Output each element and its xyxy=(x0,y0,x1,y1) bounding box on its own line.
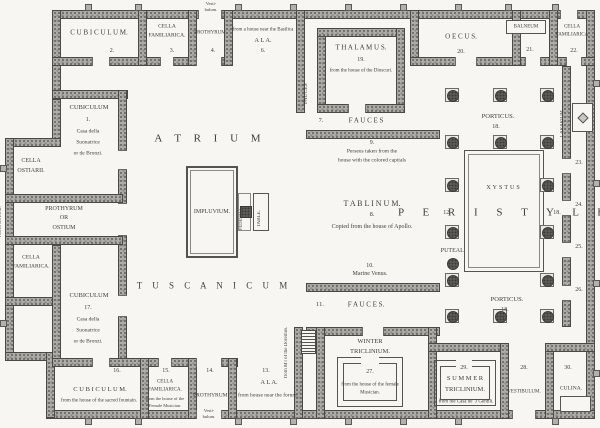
winter-triclinium-number: 27. xyxy=(366,369,374,375)
buttress xyxy=(0,165,7,172)
table-label: TABLE. xyxy=(257,197,262,227)
room-label-winter-triclinium1: WINTER xyxy=(357,339,382,346)
fauces11-number: 11. xyxy=(316,302,324,309)
buttress xyxy=(455,418,462,425)
door-gap xyxy=(562,158,571,174)
cubiculum17-note2: Suonatrice xyxy=(76,328,100,334)
buttress xyxy=(593,370,600,377)
room-label-atrium: A T R I U M xyxy=(154,134,265,145)
cubiculum1-number: 1. xyxy=(86,117,91,123)
wall xyxy=(306,283,440,292)
buttress xyxy=(593,80,600,87)
room-label-culina: CULINA. xyxy=(560,386,582,392)
room-label-prothyrum-ostium2: OR xyxy=(60,215,68,221)
wall xyxy=(317,28,326,113)
wall xyxy=(545,343,554,419)
room-label-fauces7: F A U C E S xyxy=(349,118,384,125)
room-label-oecus: O E C U S. xyxy=(445,34,477,41)
tablinum-top-note1: Perseus taken from the xyxy=(347,149,397,155)
door-gap xyxy=(562,285,571,301)
buttress xyxy=(400,418,407,425)
wall xyxy=(5,236,123,245)
winter-triclinium-note2: Musician. xyxy=(360,391,380,396)
cubiculum1-note3: or de Bronzi. xyxy=(74,151,103,157)
column xyxy=(540,88,554,102)
column xyxy=(493,135,507,149)
buttress xyxy=(593,180,600,187)
floor-plan: IMPLUVIUM. PEDESTAL. TABLE. BALNEUM A T … xyxy=(0,0,600,428)
door-gap xyxy=(560,10,578,19)
room-label-summer-triclinium1: S U M M E R xyxy=(447,376,483,383)
balneum-room-number: 21. xyxy=(526,47,534,53)
tablinum-bottom-note: Marine Venus. xyxy=(353,271,388,277)
room-label-cella-familiarica22-2: FAMILIARICA xyxy=(556,33,588,38)
porticus-bottom-number: 18. xyxy=(501,307,509,313)
wall xyxy=(138,10,147,66)
posticum-door-number: 25. xyxy=(575,244,583,250)
door-gap xyxy=(160,57,174,66)
tablinum-top-note2: house with the colored capitals xyxy=(338,158,406,164)
column xyxy=(445,88,459,102)
room-label-cella-familiarica3: CELLA xyxy=(158,24,176,30)
door-gap xyxy=(455,57,477,66)
lararium-label: LARARIUM. xyxy=(560,93,565,137)
room-label-cella-familiarica-left: CELLA xyxy=(22,255,40,261)
summer-couch-inner xyxy=(440,366,490,400)
door-gap xyxy=(512,410,536,419)
buttress xyxy=(552,418,559,425)
column xyxy=(540,178,554,192)
summer-triclinium-note: from the Casa de' 3 Gentili. xyxy=(438,400,493,405)
cubiculum17-number: 17. xyxy=(84,305,92,311)
couch-opening xyxy=(361,356,379,368)
pedestal-label: PEDESTAL. xyxy=(239,194,244,230)
balneum-label: BALNEUM xyxy=(514,25,539,30)
thalamus-note: from the house of the Dioscuri. xyxy=(330,69,393,74)
hearth xyxy=(560,396,591,412)
room-label-tablinum: T A B L I N U M. xyxy=(344,200,401,208)
door-gap xyxy=(118,295,127,317)
door-gap xyxy=(118,203,127,236)
column xyxy=(445,178,459,192)
door-gap xyxy=(92,57,110,66)
room-label-cella-familiarica-left-2: FAMILIARICA. xyxy=(12,264,49,270)
room-label-ala6: A L A. xyxy=(254,38,271,45)
cubiculum17-note1: Casa della xyxy=(77,317,100,323)
wall xyxy=(52,90,128,99)
puteal-label: PUTEAL. xyxy=(441,248,466,254)
ala6-number: 6. xyxy=(261,48,266,54)
buttress xyxy=(85,418,92,425)
niche-ornament xyxy=(577,112,588,123)
buttress xyxy=(345,418,352,425)
door-gap xyxy=(566,57,582,66)
room-label-prothyrum4: PROTHYRUM xyxy=(194,31,225,36)
cubiculum1-note2: Suonatrice xyxy=(76,140,100,146)
column xyxy=(445,309,459,323)
door-gap xyxy=(196,57,222,66)
buttress xyxy=(135,4,142,11)
room-label-cella-ostiarii: CELLA xyxy=(21,158,40,164)
buttress xyxy=(345,4,352,11)
room-label-cella-familiarica15-2: FAMILIARICA. xyxy=(148,388,182,393)
buttress xyxy=(400,4,407,11)
cella-familiarica15-note2: Female Musician. xyxy=(149,404,181,409)
wall xyxy=(5,194,123,203)
buttress xyxy=(85,4,92,11)
room-label-cubiculum17: CUBICULUM xyxy=(69,293,108,300)
cella-familiarica15-note1: from the house of the xyxy=(146,397,185,402)
room-label-prothyrum14: PROTHYRUM. xyxy=(193,393,229,399)
prothyrum4-number: 4. xyxy=(211,48,216,54)
vestibulum28-number: 28. xyxy=(520,365,528,371)
tablinum-number: 8. xyxy=(370,212,375,219)
room-label-peristyle: P E R I S T Y L E xyxy=(398,208,600,219)
posticum-door-number: 26. xyxy=(575,287,583,293)
oecus-number: 20. xyxy=(457,49,465,55)
wall xyxy=(52,10,61,99)
room-label-cubiculum16: C U B I C U L U M. xyxy=(73,387,126,394)
buttress xyxy=(593,280,600,287)
room-label-tuscanicum: T U S C A N I C U M xyxy=(137,282,292,291)
cubiculum2-number: 2. xyxy=(110,48,115,54)
tablinum-bottom-number: 10. xyxy=(366,263,374,269)
column xyxy=(445,225,459,239)
wall xyxy=(396,28,405,113)
room-label-fauces-side: FAUCES xyxy=(304,58,310,104)
door-gap xyxy=(196,358,222,367)
cubiculum16-note: from the house of the sacred fountain. xyxy=(61,399,137,404)
wall xyxy=(500,343,509,419)
buttress xyxy=(290,418,297,425)
cubiculum16-number: 16. xyxy=(113,368,121,374)
buttress xyxy=(0,320,7,327)
wall xyxy=(428,343,509,352)
cella-familiarica15-number: 15. xyxy=(162,368,170,374)
posticum-door-number: 23. xyxy=(575,160,583,166)
cubiculum1-note1: Casa della xyxy=(77,129,100,135)
wall xyxy=(317,28,405,37)
room-label-prothyrum-ostium3: OSTIUM xyxy=(52,225,75,231)
cubiculum17-note3: or de Bronzi. xyxy=(74,339,103,345)
vestibulum-bottom-note2: bulum. xyxy=(203,415,216,420)
room-label-cella-familiarica22: CELLA xyxy=(564,25,580,30)
column xyxy=(540,309,554,323)
room-label-xystus: XYSTUS xyxy=(486,185,521,191)
room-label-porticus-bottom: PORTICUS. xyxy=(491,297,524,304)
thalamus-number: 19. xyxy=(357,57,365,63)
column xyxy=(445,273,459,287)
vestibulum-bottom-note1: Vesti- xyxy=(204,409,215,414)
room-label-vestibulum28: VESTIBULUM. xyxy=(507,390,540,395)
door-gap xyxy=(362,327,384,336)
buttress xyxy=(552,4,559,11)
room-label-winter-triclinium2: TRICLINIUM. xyxy=(350,349,390,356)
ala13-number: 13. xyxy=(262,368,270,374)
wall xyxy=(549,10,558,66)
lararium-niche xyxy=(572,103,593,132)
room-label-ala13: A L A. xyxy=(260,380,277,387)
wall xyxy=(52,245,61,361)
ala13-note: from house near the forum. xyxy=(238,393,298,399)
stairs xyxy=(301,330,316,354)
porticus-top-number: 18. xyxy=(492,124,500,130)
vestibulum-left-label: VESTI-BULUM. xyxy=(0,200,3,238)
buttress xyxy=(290,4,297,11)
vestibulum-top-note1: Vesti- xyxy=(206,2,217,7)
column xyxy=(445,135,459,149)
wall xyxy=(228,358,237,419)
cella-familiarica3-number: 3. xyxy=(170,48,175,54)
buttress xyxy=(235,4,242,11)
door-gap xyxy=(158,358,172,367)
wall xyxy=(545,343,595,352)
column xyxy=(540,225,554,239)
posticum-door-number: 24. xyxy=(575,202,583,208)
room-label-cella-familiarica3-2: FAMILIARICA. xyxy=(148,33,185,39)
column xyxy=(540,273,554,287)
wall xyxy=(316,327,325,419)
door-gap xyxy=(525,57,541,66)
door-gap xyxy=(92,358,110,367)
impluvium-label: IMPLUVIUM. xyxy=(194,209,230,215)
tablinum-note: Copied from the house of Apollo. xyxy=(332,224,413,230)
room-label-cubiculum2: C U B I C U L U M. xyxy=(70,30,128,37)
wall xyxy=(512,10,521,66)
wall xyxy=(306,130,440,139)
room-label-cella-familiarica15: CELLA xyxy=(157,380,173,385)
door-gap xyxy=(118,150,127,170)
room-label-summer-triclinium2: TRICLINIUM. xyxy=(445,387,485,394)
door-gap xyxy=(348,104,366,113)
room-label-cubiculum1: CUBICULUM xyxy=(69,105,108,112)
puteal-wellhead xyxy=(447,258,459,270)
buttress xyxy=(505,4,512,11)
buttress xyxy=(455,4,462,11)
summer-triclinium-number: 29. xyxy=(460,365,468,371)
winter-triclinium-note1: from the house of the female xyxy=(341,383,399,388)
tablinum-top-number: 9. xyxy=(370,140,375,146)
fauces7-number: 7. xyxy=(319,118,324,125)
vestibulum-top-note2: bulum. xyxy=(205,8,218,13)
room-label-porticus-top: PORTICUS. xyxy=(482,114,515,121)
door-gap xyxy=(562,242,571,258)
prothyrum14-number: 14. xyxy=(206,368,214,374)
peristyle-number-left: 12. xyxy=(443,210,451,216)
culina-number: 30. xyxy=(564,365,572,371)
room-label-cella-ostiarii-2: OSTIARII. xyxy=(17,168,44,174)
wall xyxy=(224,10,233,66)
room-label-thalamus: T H A L A M U S. xyxy=(336,45,387,52)
doremus-note: from M'l of the Doremus. xyxy=(284,302,289,378)
buttress xyxy=(235,418,242,425)
buttress xyxy=(135,418,142,425)
ala6-note: from a house near the Basilica xyxy=(233,28,294,33)
cella-familiarica22-number: 22. xyxy=(570,48,578,54)
room-label-prothyrum-ostium1: PROTHYRUM xyxy=(45,206,83,212)
column xyxy=(493,88,507,102)
room-label-fauces11: F A U C E S. xyxy=(348,302,385,309)
column xyxy=(540,135,554,149)
peristyle-number-right: 18. xyxy=(553,210,561,216)
